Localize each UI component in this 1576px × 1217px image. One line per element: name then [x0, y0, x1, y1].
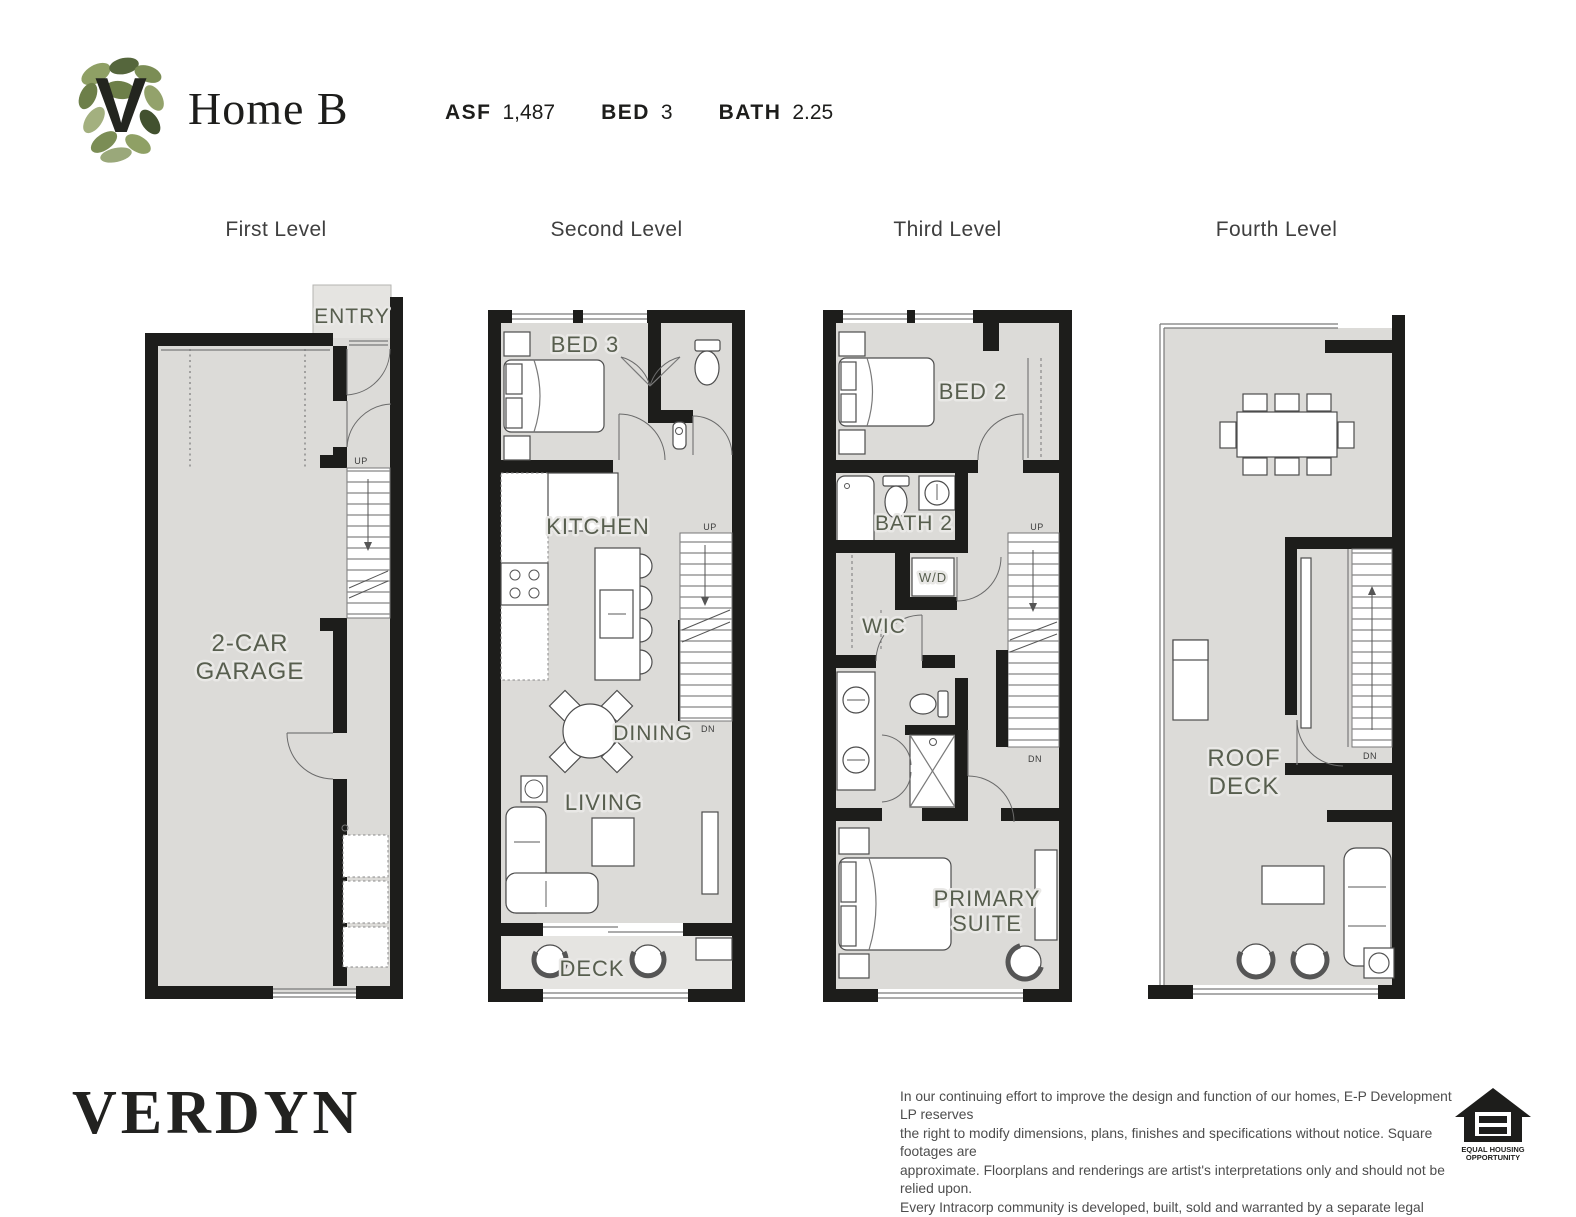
primary-vanity [837, 672, 875, 790]
verdyn-leaf-logo: V [74, 52, 168, 166]
room-label-garage-2: GARAGE [196, 658, 305, 685]
disclaimer-line: the right to modify dimensions, plans, f… [900, 1125, 1460, 1162]
room-label-living: LIVING [565, 790, 643, 815]
stair-label-up: UP [354, 456, 368, 466]
logo-v-letter: V [95, 61, 147, 149]
stairs-up [347, 468, 390, 618]
home-stats: ASF 1,487 BED 3 BATH 2.25 [445, 101, 833, 125]
room-label-garage-1: 2-CAR [211, 630, 288, 657]
primary-windows [878, 989, 1023, 1002]
disclaimer-line: In our continuing effort to improve the … [900, 1088, 1460, 1125]
bath-sink [673, 422, 686, 449]
plan-title-second: Second Level [488, 218, 745, 242]
stat-asf-label: ASF [445, 101, 492, 125]
plan-title-third: Third Level [823, 218, 1072, 242]
storage-units [342, 825, 388, 967]
room-label-wd: W/D [919, 570, 947, 585]
room-label-roof-1: ROOF [1207, 745, 1280, 772]
plan-fourth-level: Fourth Level [1148, 210, 1405, 1010]
eho-text-2: OPPORTUNITY [1466, 1153, 1520, 1162]
plan-third-level: Third Level [823, 210, 1072, 1010]
stat-asf-value: 1,487 [503, 101, 556, 125]
first-level-floorplan: UP ENTRY 2-CAR GARAGE [145, 283, 407, 1005]
deck-railing [543, 989, 688, 1002]
stair-label-dn: DN [701, 724, 715, 734]
stat-bed: BED 3 [601, 101, 673, 125]
stat-bath: BATH 2.25 [719, 101, 834, 125]
equal-housing-opportunity-logo: EQUAL HOUSING OPPORTUNITY [1452, 1086, 1534, 1162]
room-label-kitchen: KITCHEN [546, 514, 650, 539]
side-table [1364, 948, 1394, 978]
room-label-roof-2: DECK [1209, 773, 1280, 800]
page-title: Home B [188, 82, 349, 135]
room-label-dining: DINING [613, 722, 693, 745]
stair-label-dn: DN [1028, 754, 1042, 764]
disclaimer-line: Every Intracorp community is developed, … [900, 1199, 1460, 1217]
stairs [1008, 533, 1059, 747]
chaise-lounge [1173, 640, 1208, 720]
stair-label-up: UP [703, 522, 717, 532]
room-label-bed3: BED 3 [551, 332, 620, 357]
deck-slider-door [543, 923, 683, 936]
stat-bath-value: 2.25 [792, 101, 833, 125]
stairs [680, 533, 732, 721]
stat-asf: ASF 1,487 [445, 101, 555, 125]
room-label-wic: WIC [862, 615, 906, 638]
floorplan-sheet: V Home B ASF 1,487 BED 3 BATH 2.25 First… [0, 0, 1576, 1217]
stove [501, 563, 548, 605]
room-label-deck: DECK [559, 956, 624, 981]
stat-bed-label: BED [601, 101, 650, 125]
room-label-primary-2: SUITE [952, 911, 1022, 936]
room-label-entry: ENTRY [314, 305, 390, 328]
disclaimer-text: In our continuing effort to improve the … [900, 1088, 1460, 1217]
room-label-bath2: BATH 2 [875, 512, 953, 535]
stair-label-dn: DN [1363, 751, 1377, 761]
stair-label-up: UP [1030, 522, 1044, 532]
roof-railing [1193, 989, 1378, 994]
brand-wordmark: VERDYN [72, 1078, 361, 1149]
plant [521, 776, 547, 802]
plan-first-level: First Level [145, 210, 407, 1010]
media-console [702, 812, 718, 894]
outdoor-coffee-table [1262, 866, 1324, 904]
shower [910, 735, 955, 807]
fourth-level-floorplan: DN [1148, 310, 1405, 1000]
toilet [695, 340, 720, 385]
plan-second-level: Second Level [488, 210, 745, 1010]
stat-bed-value: 3 [661, 101, 673, 125]
disclaimer-line: approximate. Floorplans and renderings a… [900, 1162, 1460, 1199]
plan-title-fourth: Fourth Level [1148, 218, 1405, 242]
second-level-floorplan: UP DN [488, 310, 745, 1002]
coffee-table [592, 818, 634, 866]
room-label-bed2: BED 2 [939, 379, 1008, 404]
third-level-floorplan: UP DN [823, 310, 1072, 1002]
room-label-primary-1: PRIMARY [934, 886, 1041, 911]
plan-title-first: First Level [145, 218, 407, 242]
stat-bath-label: BATH [719, 101, 782, 125]
